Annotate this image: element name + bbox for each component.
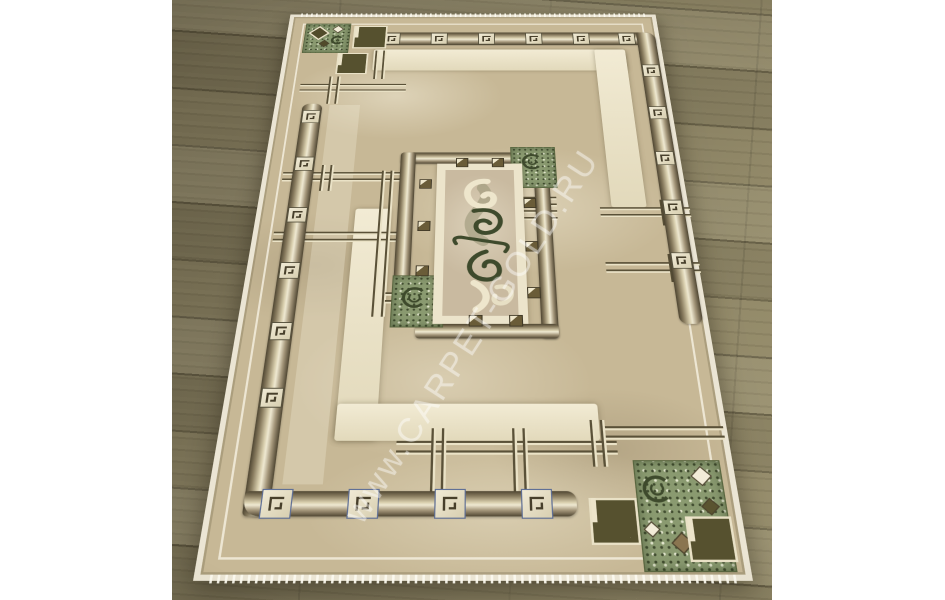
- greek-key-tile: [521, 489, 554, 519]
- greek-key-tile: [618, 33, 636, 44]
- track-motif: [604, 426, 726, 441]
- gem-square: [492, 158, 504, 167]
- cream-band: [372, 49, 628, 70]
- diamond-inlay-tile: [588, 498, 641, 545]
- greek-key-tile: [286, 207, 308, 222]
- greek-key-tile: [478, 33, 495, 44]
- cream-band: [334, 404, 600, 441]
- carpet-photo: www.CARPET-GOLD.RU: [172, 0, 772, 600]
- greek-key-tile: [278, 262, 301, 279]
- spiral-icon: [522, 154, 543, 169]
- track-motif: [430, 428, 448, 491]
- greek-key-tile: [434, 489, 466, 519]
- greek-key-tile: [648, 106, 668, 119]
- greek-key-tile: [572, 33, 590, 44]
- greek-key-tile: [642, 65, 661, 77]
- track-motif: [396, 441, 618, 456]
- gem-square: [417, 221, 430, 231]
- gem-square: [527, 287, 541, 298]
- greek-key-tile: [525, 33, 543, 44]
- carpet-fringe-top: [301, 13, 645, 17]
- track-motif: [373, 51, 387, 79]
- diamond-inlay-tile: [335, 53, 368, 74]
- greek-key-tile: [655, 151, 676, 165]
- gem-square: [509, 315, 523, 327]
- greek-key-tile: [269, 322, 293, 340]
- diamond-inlay-tile: [685, 516, 739, 562]
- gem-square: [419, 179, 432, 188]
- greek-key-tile: [259, 388, 284, 408]
- greek-key-tile: [294, 157, 315, 171]
- track-motif: [512, 428, 530, 491]
- greek-key-tile: [301, 110, 321, 123]
- greek-key-tile: [259, 489, 294, 519]
- gem-square: [415, 265, 429, 276]
- greek-key-tile: [431, 33, 448, 44]
- gem-square: [456, 158, 468, 167]
- carpet-fringe-bottom: [209, 575, 737, 584]
- greek-key-tile: [670, 252, 693, 268]
- border-tube-top: [371, 33, 656, 45]
- photo-frame: www.CARPET-GOLD.RU: [0, 0, 945, 600]
- greek-key-tile: [662, 200, 684, 215]
- track-motif: [299, 84, 406, 93]
- diamond-inlay-tile: [352, 26, 388, 48]
